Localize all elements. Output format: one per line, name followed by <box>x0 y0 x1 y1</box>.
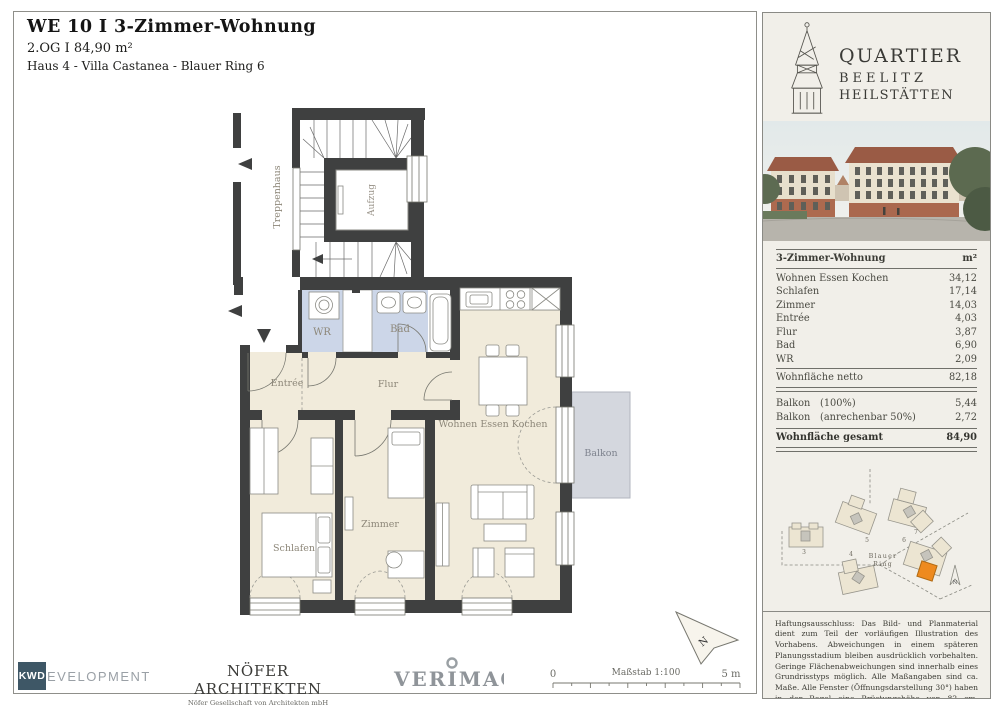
sofa <box>471 485 534 519</box>
scale-bar: 0 5 m Maßstab 1:100 <box>550 668 741 688</box>
svg-text:VERIMAG: VERIMAG <box>393 667 504 691</box>
netto-row: Wohnfläche netto82,18 <box>776 369 977 387</box>
room-label-bad: Bad <box>390 324 410 335</box>
kwd-logo-box: KWD <box>18 662 46 690</box>
site-building-7 <box>887 487 939 535</box>
site-plan: 3 4 5 6 7 Blauer Ring N <box>774 457 979 607</box>
brand-line2: BEELITZ <box>839 71 962 86</box>
floor-plan-drawing: Treppenhaus Aufzug WR Bad Entrée Flur Wo… <box>0 0 762 707</box>
site-building-5 <box>835 493 879 534</box>
north-arrow: N <box>676 612 738 664</box>
balkon-row-50: Balkon (anrechenbar 50%) 2,72 <box>776 411 977 425</box>
project-rendering-image <box>763 121 990 241</box>
tower-icon <box>787 21 827 117</box>
site-building-3 <box>789 523 823 547</box>
brand-line3: HEILSTÄTTEN <box>839 88 962 103</box>
room-label-zimmer: Zimmer <box>361 519 399 530</box>
table-row: Entrée4,03 <box>776 312 977 326</box>
room-label-flur: Flur <box>378 379 399 390</box>
room-label-balkon: Balkon <box>584 448 617 459</box>
quartier-brand: QUARTIER BEELITZ HEILSTÄTTEN <box>763 13 990 119</box>
room-label-entree: Entrée <box>271 378 304 389</box>
scale-zero: 0 <box>550 669 556 680</box>
table-row: Bad6,90 <box>776 339 977 353</box>
table-row: Wohnen Essen Kochen34,12 <box>776 272 977 286</box>
table-row: Schlafen17,14 <box>776 285 977 299</box>
table-row: Flur3,87 <box>776 326 977 340</box>
room-label-wohnen: Wohnen Essen Kochen <box>438 419 547 430</box>
scale-label: Maßstab 1:100 <box>612 668 681 678</box>
kwd-development-logo: KWD EVELOPMENT <box>18 662 151 690</box>
table-row: Zimmer14,03 <box>776 299 977 313</box>
svg-text:5: 5 <box>865 537 869 544</box>
svg-text:3: 3 <box>802 549 806 556</box>
architect-logo: NÖFER ARCHITEKTEN Nöfer Gesellschaft von… <box>168 662 348 707</box>
svg-text:7: 7 <box>914 529 918 536</box>
balkon-row-100: Balkon (100%) 5,44 <box>776 397 977 411</box>
svg-text:N: N <box>953 580 958 586</box>
room-label-wr: WR <box>313 327 331 338</box>
verimag-logo: VERIMAG <box>392 656 504 692</box>
plan-sheet: WE 10 I 3-Zimmer-Wohnung 2.OG I 84,90 m²… <box>0 0 1000 707</box>
brand-line1: QUARTIER <box>839 45 962 67</box>
info-panel: QUARTIER BEELITZ HEILSTÄTTEN <box>762 12 991 699</box>
site-north-arrow: N <box>950 565 960 586</box>
area-table: 3-Zimmer-Wohnung m² Wohnen Essen Kochen3… <box>776 249 977 452</box>
street-name-line2: Ring <box>873 560 893 568</box>
area-table-header: 3-Zimmer-Wohnung m² <box>776 249 977 269</box>
dining-table <box>479 357 527 405</box>
room-label-schlafen: Schlafen <box>273 543 315 554</box>
street-name-line1: Blauer <box>869 552 898 560</box>
svg-text:4: 4 <box>849 551 853 558</box>
room-label-treppenhaus: Treppenhaus <box>272 165 283 228</box>
scale-end: 5 m <box>721 669 741 680</box>
washing-machine <box>309 292 339 319</box>
svg-text:6: 6 <box>902 537 906 544</box>
table-row: WR2,09 <box>776 353 977 367</box>
balcony-area <box>572 392 630 498</box>
disclaimer-text: Haftungsausschluss: Das Bild- und Planma… <box>775 619 978 699</box>
room-label-aufzug: Aufzug <box>367 184 377 217</box>
site-building-4 <box>836 555 878 594</box>
total-row: Wohnfläche gesamt84,90 <box>776 429 977 447</box>
disclaimer: Haftungsausschluss: Das Bild- und Planma… <box>763 611 990 699</box>
